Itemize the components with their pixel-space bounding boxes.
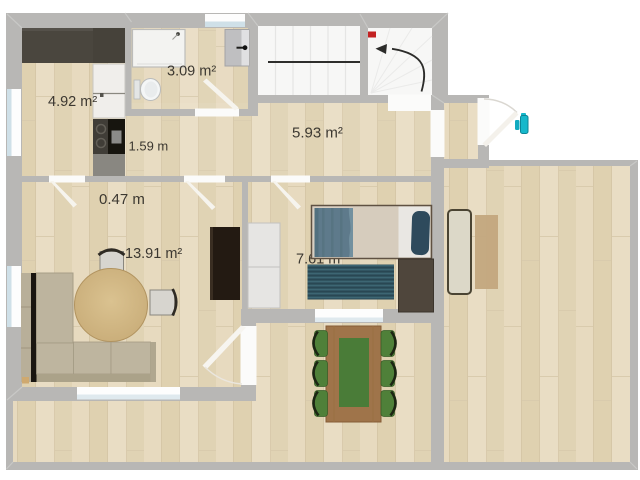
svg-text:4.92 m²: 4.92 m² bbox=[48, 94, 97, 110]
svg-text:13.91 m²: 13.91 m² bbox=[125, 246, 182, 262]
svg-text:5.93 m²: 5.93 m² bbox=[292, 125, 343, 142]
svg-text:1.59 m: 1.59 m bbox=[129, 139, 169, 154]
svg-text:3.09 m²: 3.09 m² bbox=[167, 64, 216, 80]
svg-text:0.47 m: 0.47 m bbox=[99, 191, 145, 208]
